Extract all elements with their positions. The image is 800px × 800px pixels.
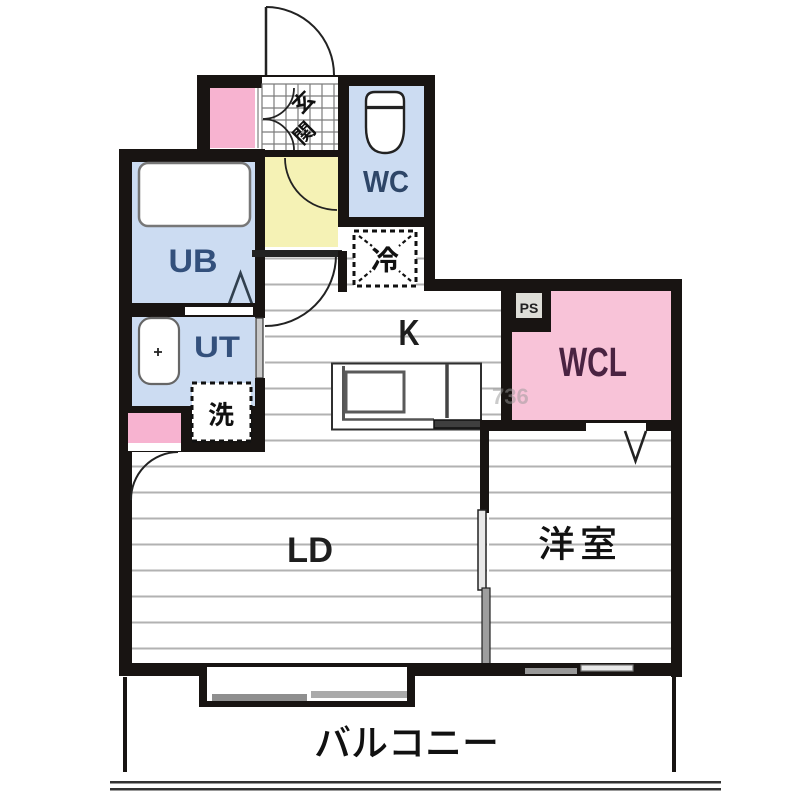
svg-text:K: K [399,312,420,353]
svg-text:WCL: WCL [559,339,627,385]
svg-text:736: 736 [492,384,529,409]
svg-text:PS: PS [520,300,539,316]
svg-text:UB: UB [169,243,218,279]
svg-text:UT: UT [194,331,240,364]
svg-text:LD: LD [287,531,333,570]
svg-text:WC: WC [363,164,409,199]
